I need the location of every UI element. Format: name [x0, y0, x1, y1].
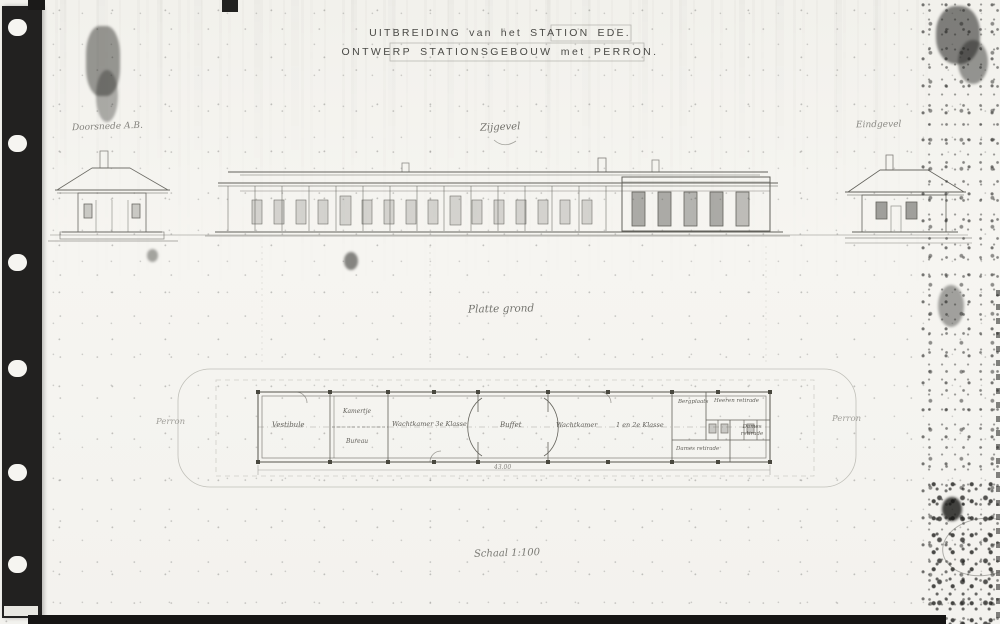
- room-label-dames-retirade-bottom: Dames retirade: [676, 446, 719, 452]
- platform-label-right: Perron: [832, 414, 861, 424]
- scan-stain: [344, 252, 358, 270]
- left-elevation-drawing: [48, 151, 178, 241]
- punch-hole: [8, 556, 27, 573]
- right-pavilion: [622, 177, 770, 231]
- scan-stain: [96, 70, 118, 122]
- scan-stain: [222, 0, 238, 12]
- punch-hole: [8, 135, 27, 152]
- scan-stain: [147, 249, 158, 262]
- end-elevation-label: Eindgevel: [856, 120, 902, 131]
- room-label-heeren-retirade: Heeren retirade: [714, 398, 759, 404]
- room-label-kamertje: Kamertje: [343, 408, 371, 415]
- scan-bottom-edge: [28, 615, 946, 624]
- scanned-drawing-sheet: UITBREIDING van het STATION EDE. ONTWERP…: [0, 0, 1000, 624]
- room-label-bergplaats: Bergplaats: [678, 399, 708, 405]
- room-label-buffet: Buffet: [500, 421, 522, 429]
- punch-hole: [8, 464, 27, 481]
- room-label-wachtkamer-3e-klasse: Wachtkamer 3e Klasse: [392, 420, 467, 428]
- label-flourish: [494, 140, 516, 145]
- punch-hole: [8, 360, 27, 377]
- punch-hole: [8, 254, 27, 271]
- binding-strip-top: [28, 0, 45, 10]
- room-label-1-en-2e-klasse: 1 en 2e Klasse: [616, 421, 664, 429]
- awning-posts: [228, 186, 606, 231]
- dimension-value: 43.00: [494, 464, 511, 471]
- drawing-title-line2: ONTWERP STATIONSGEBOUW met PERRON.: [0, 46, 1000, 58]
- drawing-title-line1: UITBREIDING van het STATION EDE.: [0, 27, 1000, 39]
- room-label-dames-retirade-right: Dames retirade: [735, 424, 769, 437]
- room-label-bureau: Bureau: [346, 438, 368, 445]
- window-row: [252, 196, 592, 225]
- floor-plan-label: Platte grond: [468, 302, 534, 315]
- room-label-wachtkamer: Wachtkamer: [556, 421, 597, 429]
- room-label-vestibule: Vestibule: [272, 421, 305, 429]
- side-elevation-label: Zijgevel: [480, 121, 521, 133]
- dimension-line: [258, 465, 770, 475]
- binding-strip: [2, 6, 42, 618]
- scale-note: Schaal 1:100: [474, 547, 540, 560]
- side-elevation-drawing: [205, 158, 790, 236]
- platform-label-left: Perron: [156, 417, 185, 427]
